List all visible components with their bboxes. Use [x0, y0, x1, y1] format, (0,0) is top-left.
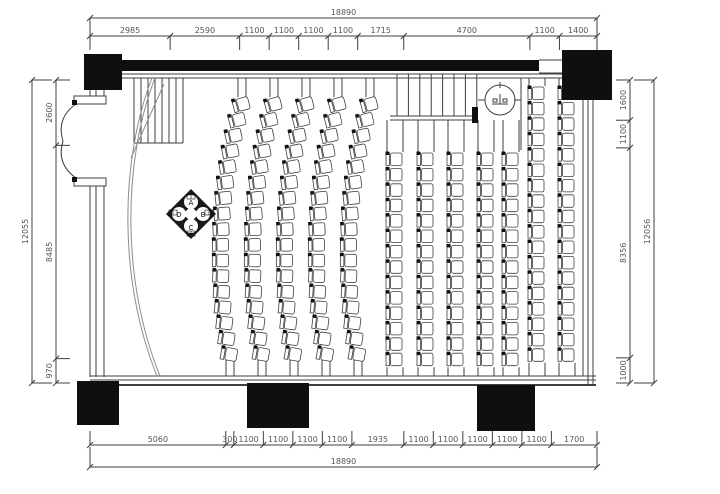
seat [245, 283, 262, 298]
seat [528, 301, 545, 315]
seat-pan [391, 261, 403, 274]
seat-marker [216, 175, 220, 179]
seat-pan [249, 270, 261, 283]
seat-marker [308, 222, 312, 226]
seat-pan [284, 316, 297, 330]
seat-pan [452, 168, 464, 181]
seat-marker [244, 237, 248, 241]
seat [276, 237, 293, 251]
seat-marker [348, 145, 352, 149]
seat-marker [244, 268, 248, 272]
seat [502, 167, 519, 181]
seat-pan [250, 207, 262, 220]
seat-pan [391, 199, 403, 212]
seat-pan [325, 128, 339, 143]
double-swing-door [61, 96, 106, 186]
seat-marker [502, 306, 506, 310]
seat-pan [268, 96, 282, 111]
dim-label: 4700 [457, 26, 477, 35]
seat [528, 101, 545, 115]
seat [528, 332, 545, 346]
seat-marker [215, 299, 219, 303]
seat-marker [316, 145, 320, 149]
dim-label: 2985 [120, 26, 140, 35]
seat-pan [252, 316, 265, 330]
seat-pan [221, 175, 234, 189]
seat [502, 321, 519, 335]
seat [340, 253, 357, 267]
dim-label: 1600 [619, 90, 628, 110]
seat [386, 182, 403, 196]
seat [447, 229, 464, 243]
seat-marker [558, 317, 562, 321]
seat-pan [422, 353, 434, 366]
seat-pan [563, 195, 575, 208]
seat-pan [533, 272, 545, 285]
seat-pan [482, 276, 494, 289]
seat-marker [417, 152, 421, 156]
seat-marker [312, 314, 316, 318]
seat-marker [447, 229, 451, 233]
seat [309, 205, 327, 220]
seat-pan [452, 245, 464, 258]
seat-pan [507, 322, 519, 335]
seat [308, 253, 325, 267]
seat [558, 301, 575, 315]
seat-pan [422, 338, 434, 351]
seat [348, 142, 367, 159]
seat-pan [507, 307, 519, 320]
seat-pan [507, 338, 519, 351]
seat-marker [352, 129, 356, 133]
seat-marker [256, 129, 260, 133]
seat-pan [354, 144, 368, 158]
seat [386, 167, 403, 181]
seat [447, 306, 464, 320]
seat-marker [213, 206, 217, 210]
seat-pan [533, 256, 545, 269]
seat-marker [340, 268, 344, 272]
seat-marker [558, 116, 562, 120]
seat [386, 336, 403, 350]
seat-pan [217, 238, 229, 251]
seat-marker [417, 244, 421, 248]
seat-marker [528, 347, 532, 351]
seat [316, 345, 335, 362]
column-top-left [84, 54, 122, 90]
seat [276, 221, 293, 236]
seat-pan [348, 316, 361, 330]
seat [502, 336, 519, 350]
seat [528, 270, 545, 284]
seat-marker [283, 330, 287, 334]
seat [227, 111, 246, 129]
seat-marker [447, 336, 451, 340]
seat-marker [276, 253, 280, 257]
seat [288, 126, 307, 143]
seat-pan [258, 144, 272, 158]
seat-pan [352, 347, 365, 361]
seat-pan [563, 102, 575, 115]
seat [386, 290, 403, 304]
seat-pan [287, 159, 300, 173]
seat [558, 193, 575, 207]
seat-pan [283, 301, 296, 315]
seat-marker [558, 86, 562, 90]
seat [477, 275, 494, 289]
dim-label: 1100 [274, 26, 294, 35]
seat-pan [281, 270, 293, 283]
seat [417, 336, 434, 350]
seat-pan [391, 230, 403, 243]
seat-pan [256, 347, 269, 361]
seat-pan [563, 118, 575, 131]
seat [244, 221, 261, 236]
seat [355, 111, 374, 129]
seat-marker [386, 352, 390, 356]
seat [558, 147, 575, 161]
seat-marker [447, 306, 451, 310]
seat [528, 286, 545, 300]
seat-marker [417, 182, 421, 186]
seat-marker [386, 167, 390, 171]
seat [310, 299, 328, 314]
seat-marker [216, 314, 220, 318]
seat-pan [281, 238, 293, 251]
seat-pan [482, 199, 494, 212]
seat-marker [558, 101, 562, 105]
seat-marker [288, 129, 292, 133]
seat [386, 213, 403, 227]
seat-marker [346, 160, 350, 164]
seat-pan [318, 332, 331, 346]
seat [477, 182, 494, 196]
seat [502, 290, 519, 304]
seat-pan [422, 199, 434, 212]
seat [212, 237, 229, 251]
seat [477, 229, 494, 243]
dim-label: 1100 [244, 26, 264, 35]
seat [528, 163, 545, 177]
seat-pan [282, 207, 294, 220]
side-corridor [390, 78, 521, 150]
seat-pan [347, 191, 360, 205]
curved-seat-rows [212, 95, 379, 362]
seat-marker [528, 224, 532, 228]
seat-pan [255, 159, 268, 173]
seat [246, 299, 264, 314]
seat-marker [278, 191, 282, 195]
seat-marker [447, 352, 451, 356]
seat [231, 95, 251, 113]
seat-pan [314, 207, 326, 220]
seat-pan [314, 285, 326, 298]
seat-pan [249, 238, 261, 251]
stage-edge-curve [128, 78, 164, 376]
seat-pan [391, 184, 403, 197]
seat-pan [452, 215, 464, 228]
seat-marker [558, 209, 562, 213]
seat-pan [391, 353, 403, 366]
seat [309, 283, 326, 298]
seat [252, 142, 271, 159]
seat [346, 158, 365, 174]
seat [558, 209, 575, 223]
seat [502, 244, 519, 258]
seat [247, 314, 265, 330]
seat [528, 255, 545, 269]
dim-label: 1100 [333, 26, 353, 35]
dim-label: 1700 [564, 435, 584, 444]
seat-marker [477, 259, 481, 263]
seat [276, 268, 293, 283]
seat [308, 221, 325, 236]
dim-label: 1100 [619, 124, 628, 144]
seat-pan [452, 261, 464, 274]
seat-marker [417, 259, 421, 263]
seat-pan [350, 332, 363, 346]
seat-pan [391, 168, 403, 181]
auditorium-plan-svg: A B C D 18890298525901100110011001100171… [0, 0, 720, 494]
seat-pan [286, 332, 299, 346]
dim-label: 1100 [238, 435, 258, 444]
seat-pan [391, 338, 403, 351]
seat-marker [502, 275, 506, 279]
seat-marker [386, 336, 390, 340]
seat-pan [533, 133, 545, 146]
compass-emblem: A B C D [166, 189, 216, 239]
seat-pan [281, 254, 293, 267]
seat-pan [391, 322, 403, 335]
seat [502, 152, 519, 166]
seat-marker [528, 286, 532, 290]
seat-pan [563, 303, 575, 316]
seat-pan [533, 287, 545, 300]
seat-marker [558, 347, 562, 351]
seat-marker [477, 352, 481, 356]
dim-label: 1100 [467, 435, 487, 444]
seat [502, 259, 519, 273]
seat-marker [558, 301, 562, 305]
seat-pan [507, 245, 519, 258]
seat [447, 152, 464, 166]
seat [308, 237, 325, 251]
seat-pan [452, 153, 464, 166]
seat-pan [229, 128, 243, 143]
seat [417, 259, 434, 273]
dim-label: 1935 [368, 435, 388, 444]
seat [528, 224, 545, 238]
seat-marker [344, 175, 348, 179]
dim-label: 1400 [568, 26, 588, 35]
seat-marker [558, 163, 562, 167]
column-bottom-right [477, 385, 535, 431]
seat [308, 268, 325, 283]
seat [417, 213, 434, 227]
seat [447, 259, 464, 273]
seat-pan [328, 112, 342, 127]
seat-pan [563, 179, 575, 192]
seat [313, 330, 331, 346]
seat-pan [261, 128, 275, 143]
seat-pan [452, 338, 464, 351]
seat-marker [447, 198, 451, 202]
seat-marker [477, 182, 481, 186]
seat [216, 174, 234, 190]
seat-marker [447, 244, 451, 248]
seat-marker [349, 345, 353, 349]
seat [386, 321, 403, 335]
seat [386, 229, 403, 243]
seat [502, 275, 519, 289]
seat [558, 178, 575, 192]
seat-marker [213, 283, 217, 287]
seat [528, 240, 545, 254]
seat-marker [212, 222, 216, 226]
seat-marker [528, 270, 532, 274]
seat-marker [502, 182, 506, 186]
seat-marker [528, 255, 532, 259]
dim-label: 5060 [148, 435, 168, 444]
seat-pan [422, 230, 434, 243]
seat-pan [422, 184, 434, 197]
seat-marker [528, 332, 532, 336]
seat-pan [264, 112, 278, 127]
seat [244, 268, 261, 283]
seat-marker [558, 255, 562, 259]
seat-marker [528, 116, 532, 120]
seat-marker [558, 178, 562, 182]
seat-marker [212, 253, 216, 257]
seat-pan [319, 159, 332, 173]
seat-pan [345, 223, 357, 236]
seat-pan [391, 292, 403, 305]
seat [528, 116, 545, 130]
column-bottom-middle [247, 383, 309, 428]
seat-marker [528, 317, 532, 321]
seat-pan [364, 96, 378, 111]
seat [528, 86, 545, 100]
seat [244, 237, 261, 251]
seat [259, 111, 278, 129]
seat-pan [563, 226, 575, 239]
seat [323, 111, 342, 129]
seat-pan [482, 245, 494, 258]
seat-marker [558, 270, 562, 274]
seat-marker [528, 193, 532, 197]
seat [352, 126, 371, 143]
seat-pan [254, 332, 267, 346]
seat [386, 259, 403, 273]
seat-marker [502, 213, 506, 217]
seat-marker [477, 198, 481, 202]
seat-pan [281, 223, 293, 236]
seat-marker [386, 198, 390, 202]
seat [320, 126, 339, 143]
seat [558, 347, 575, 361]
seat-marker [212, 268, 216, 272]
seat [341, 283, 358, 298]
seat [447, 336, 464, 350]
seat-marker [502, 321, 506, 325]
seat-marker [502, 290, 506, 294]
seat-pan [217, 270, 229, 283]
seat-pan [285, 175, 298, 189]
seat-pan [533, 241, 545, 254]
seat-pan [226, 144, 240, 158]
seat [477, 321, 494, 335]
seat-marker [310, 191, 314, 195]
seat-marker [477, 336, 481, 340]
seat-pan [482, 168, 494, 181]
seat [477, 213, 494, 227]
seat-marker [558, 240, 562, 244]
dim-label: 12055 [21, 219, 30, 244]
seat [220, 345, 239, 362]
seat [558, 317, 575, 331]
seat-marker [477, 244, 481, 248]
seat-marker [528, 86, 532, 90]
seat-marker [308, 253, 312, 257]
seat-marker [528, 209, 532, 213]
seat [477, 306, 494, 320]
seat-marker [317, 345, 321, 349]
seat [212, 268, 229, 283]
seat-marker [558, 147, 562, 151]
seat-marker [248, 175, 252, 179]
seat-pan [563, 149, 575, 162]
dim-label: 1100 [268, 435, 288, 444]
seat [447, 352, 464, 366]
seat-marker [477, 306, 481, 310]
seat-pan [251, 301, 264, 315]
seat-marker [280, 314, 284, 318]
seat-marker [340, 222, 344, 226]
seat-marker [417, 275, 421, 279]
dim-label: 12056 [643, 219, 652, 244]
seat-marker [502, 259, 506, 263]
seat-pan [250, 285, 262, 298]
side-entry-steps [397, 74, 477, 116]
seat-pan [482, 261, 494, 274]
seat-pan [452, 184, 464, 197]
seat [447, 213, 464, 227]
seat [417, 290, 434, 304]
seat-marker [447, 321, 451, 325]
seat-marker [558, 193, 562, 197]
seat-marker [219, 330, 223, 334]
seat [447, 290, 464, 304]
seat [417, 321, 434, 335]
seat [245, 205, 263, 220]
seat [327, 95, 347, 113]
seat [417, 352, 434, 366]
seat-pan [391, 215, 403, 228]
seat-marker [311, 299, 315, 303]
seat-marker [447, 152, 451, 156]
seat-pan [422, 307, 434, 320]
seat-pan [345, 254, 357, 267]
seat-pan [533, 87, 545, 100]
seat-marker [447, 182, 451, 186]
seat-pan [345, 270, 357, 283]
seat-marker [528, 132, 532, 136]
seat [558, 270, 575, 284]
seat [502, 198, 519, 212]
seat [341, 205, 359, 220]
seat [310, 190, 328, 206]
seat-pan [563, 287, 575, 300]
